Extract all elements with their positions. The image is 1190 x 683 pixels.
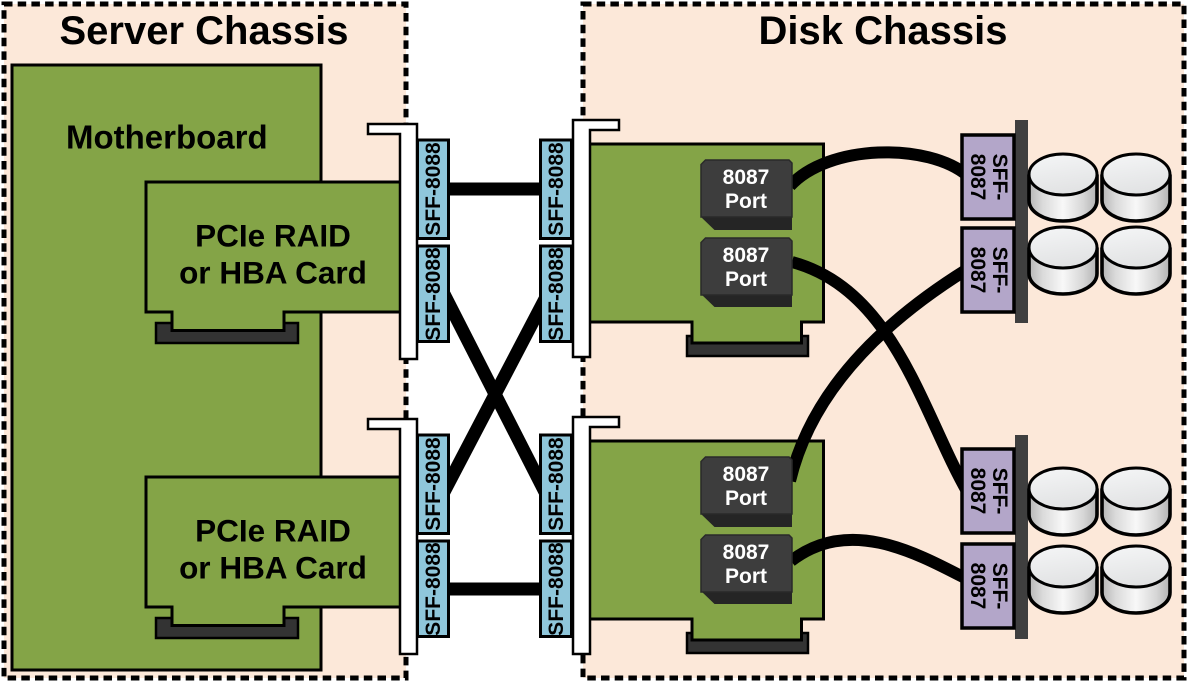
svg-text:Port: Port: [725, 190, 767, 213]
svg-text:8087: 8087: [723, 166, 770, 189]
svg-text:Disk Chassis: Disk Chassis: [758, 9, 1007, 53]
svg-text:SFF-8088: SFF-8088: [545, 542, 568, 636]
svg-text:Motherboard: Motherboard: [66, 119, 268, 156]
svg-text:PCIe RAID: PCIe RAID: [195, 513, 351, 549]
svg-text:SFF-8088: SFF-8088: [545, 142, 568, 236]
svg-text:8087: 8087: [723, 244, 770, 267]
svg-text:SFF-8088: SFF-8088: [422, 542, 445, 636]
svg-text:Port: Port: [725, 565, 767, 588]
svg-text:SFF-8088: SFF-8088: [545, 437, 568, 531]
svg-text:SFF-8088: SFF-8088: [422, 437, 445, 531]
svg-text:8087: 8087: [966, 247, 989, 294]
svg-text:or HBA Card: or HBA Card: [179, 550, 367, 586]
svg-text:PCIe RAID: PCIe RAID: [195, 218, 351, 254]
svg-text:8087: 8087: [966, 563, 989, 610]
svg-text:SFF-8088: SFF-8088: [422, 142, 445, 236]
svg-text:Port: Port: [725, 487, 767, 510]
svg-text:SFF-8088: SFF-8088: [545, 247, 568, 341]
svg-text:SFF-: SFF-: [988, 468, 1011, 515]
svg-text:Port: Port: [725, 268, 767, 291]
svg-text:SFF-: SFF-: [988, 247, 1011, 294]
svg-text:SFF-: SFF-: [988, 563, 1011, 610]
svg-text:8087: 8087: [723, 463, 770, 486]
svg-text:SFF-8088: SFF-8088: [422, 247, 445, 341]
svg-text:SFF-: SFF-: [988, 154, 1011, 201]
svg-text:8087: 8087: [966, 154, 989, 201]
svg-text:8087: 8087: [723, 541, 770, 564]
svg-text:8087: 8087: [966, 468, 989, 515]
svg-text:Server Chassis: Server Chassis: [59, 9, 348, 53]
svg-text:or HBA Card: or HBA Card: [179, 255, 367, 291]
